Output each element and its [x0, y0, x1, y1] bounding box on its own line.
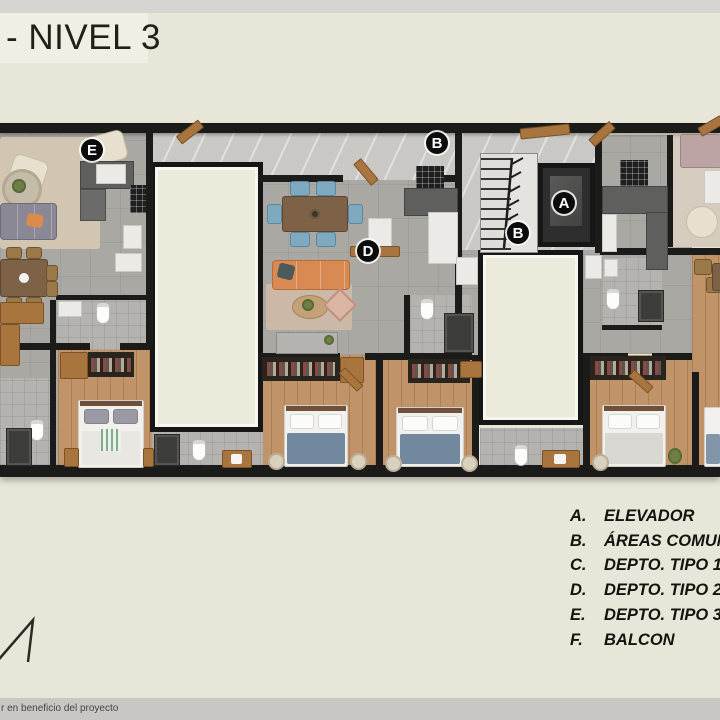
vanity	[222, 450, 252, 468]
wall-mid-bath-left	[404, 295, 410, 355]
logo-mark	[0, 600, 45, 670]
toilet	[514, 445, 528, 466]
bed-partial	[704, 407, 720, 467]
legend-label: DEPTO. TIPO 1	[604, 553, 720, 578]
legend-row: E.DEPTO. TIPO 3	[570, 603, 720, 628]
kitchen-counter	[602, 186, 668, 214]
legend-label: DEPTO. TIPO 2	[604, 578, 720, 603]
legend-key: C.	[570, 553, 604, 578]
toilet	[606, 289, 620, 310]
label-circle-a: A	[553, 192, 575, 214]
label-circle-d: D	[357, 240, 379, 262]
page-title: - NIVEL 3	[6, 18, 161, 58]
pillow	[402, 416, 428, 431]
cabinet	[0, 324, 20, 366]
hanging-clothes	[595, 361, 662, 374]
top-strip	[0, 0, 720, 13]
dining-chair	[26, 247, 42, 259]
toilet	[30, 420, 44, 441]
dining-chair-blue	[267, 204, 282, 224]
desk	[0, 302, 44, 324]
toilet	[96, 303, 110, 324]
sink	[554, 454, 566, 464]
wall-far-right-divider	[692, 372, 699, 467]
shower	[444, 313, 474, 353]
legend-row: A.ELEVADOR	[570, 504, 720, 529]
slide: { "slide": { "title": "- NIVEL 3", "foot…	[0, 0, 720, 720]
kitchen-counter	[646, 212, 668, 270]
fridge	[602, 214, 617, 252]
toilet	[420, 299, 434, 320]
void-courtyard-1	[150, 162, 263, 432]
label-circle-b-top: B	[426, 132, 448, 154]
plant-pot	[12, 179, 26, 193]
legend-key: F.	[570, 628, 604, 653]
dresser	[115, 253, 142, 272]
label-circle-b-core: B	[507, 222, 529, 244]
wall-right-bath-bottom	[602, 325, 662, 330]
legend-key: B.	[570, 529, 604, 554]
hanging-clothes	[267, 362, 336, 375]
washer	[585, 255, 602, 279]
blanket	[605, 433, 662, 464]
table-bowl	[19, 273, 29, 283]
floor-plan: E B A B D	[0, 117, 720, 479]
pillow	[84, 409, 109, 424]
vanity	[542, 450, 580, 468]
dining-chair-blue	[348, 204, 363, 224]
pillow	[432, 416, 458, 431]
headboard	[604, 406, 664, 411]
legend-label: ELEVADOR	[604, 504, 694, 529]
dining-table	[282, 196, 348, 232]
legend-label: DEPTO. TIPO 3	[604, 603, 720, 628]
headboard	[398, 408, 462, 413]
dining-chair-blue	[290, 181, 310, 196]
kitchen-island	[80, 189, 106, 221]
bedside-stool	[461, 455, 478, 472]
nightstand	[64, 448, 79, 467]
stove-grill	[620, 160, 648, 186]
plant-pot	[302, 299, 314, 311]
wall-left-bath-top	[56, 295, 147, 300]
bedside-stool	[592, 454, 609, 471]
wardrobe	[60, 352, 88, 379]
legend-row: B.ÁREAS COMUNES	[570, 529, 720, 554]
bedside-stool	[350, 453, 367, 470]
dining-table	[0, 259, 48, 297]
bed	[396, 407, 464, 467]
stove	[96, 164, 126, 184]
throw-pillow	[26, 213, 44, 229]
closet	[262, 357, 340, 381]
hanging-clothes	[412, 364, 467, 377]
wall-elevator-right	[595, 133, 602, 253]
label-circle-e: E	[81, 139, 103, 161]
bed-runner	[101, 429, 121, 451]
washer	[456, 257, 478, 285]
centerpiece	[310, 209, 320, 219]
dining-chair	[6, 247, 22, 259]
pillow	[636, 414, 660, 429]
blanket	[287, 433, 344, 464]
dining-table	[712, 263, 720, 291]
shower	[154, 434, 180, 466]
dining-chair	[694, 259, 712, 275]
pantry-unit	[130, 185, 146, 213]
closet	[88, 352, 134, 377]
legend-key: E.	[570, 603, 604, 628]
pillow	[290, 414, 314, 429]
sink-counter	[604, 259, 618, 277]
dining-chair	[46, 265, 58, 281]
wall-left-bath-divider	[50, 300, 56, 472]
bed	[284, 405, 348, 467]
legend-label: ÁREAS COMUNES	[604, 529, 720, 554]
dining-chair-blue	[290, 232, 310, 247]
blanket	[706, 434, 720, 464]
pillow	[608, 414, 632, 429]
shower	[638, 290, 664, 322]
legend-key: A.	[570, 504, 604, 529]
legend-row: C.DEPTO. TIPO 1	[570, 553, 720, 578]
bedside-stool	[385, 455, 402, 472]
sofa-mauve	[680, 134, 720, 168]
footer-note: r en beneficio del proyecto	[1, 703, 118, 714]
hanging-clothes	[91, 358, 131, 372]
headboard	[286, 406, 346, 411]
dining-chair	[46, 281, 58, 297]
dining-chair-blue	[316, 232, 336, 247]
legend-key: D.	[570, 578, 604, 603]
legend-row: D.DEPTO. TIPO 2	[570, 578, 720, 603]
wall-left-apt-right	[146, 133, 153, 345]
plant-pot	[324, 335, 334, 345]
wall-right-bedroom-left	[583, 355, 590, 467]
legend: A.ELEVADOR B.ÁREAS COMUNES C.DEPTO. TIPO…	[570, 504, 720, 652]
void-courtyard-2	[478, 250, 583, 425]
shower	[6, 428, 32, 466]
plant-pot	[668, 448, 682, 464]
toilet	[192, 440, 206, 461]
bed	[78, 400, 144, 468]
sink	[231, 454, 242, 464]
wall-mid-bedrooms-divider	[376, 355, 383, 467]
blanket	[400, 434, 461, 464]
shelf	[460, 361, 482, 378]
dining-chair-blue	[316, 181, 336, 196]
swivel-chair	[686, 206, 718, 238]
bed	[602, 405, 666, 467]
nightstand	[143, 448, 154, 467]
dresser	[123, 225, 142, 249]
wall-bed-left-top-b	[120, 343, 152, 350]
pillow	[318, 414, 342, 429]
stove-grill	[416, 166, 444, 190]
bedside-stool	[268, 453, 285, 470]
headboard	[80, 401, 142, 406]
fridge	[428, 212, 458, 264]
pillow	[113, 409, 138, 424]
sink-counter	[58, 301, 82, 317]
coffee-table	[704, 170, 720, 204]
legend-label: BALCON	[604, 628, 675, 653]
legend-row: F.BALCON	[570, 628, 720, 653]
